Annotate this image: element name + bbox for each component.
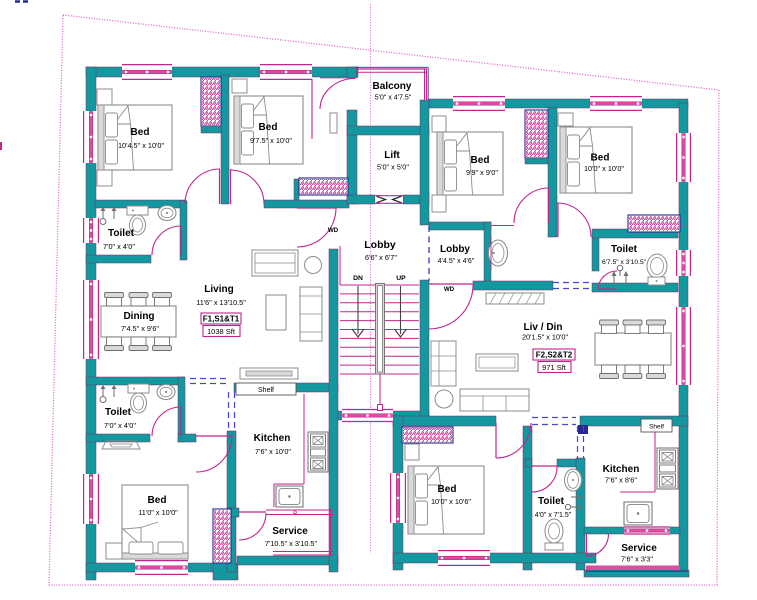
svg-text:Kitchen: Kitchen: [603, 464, 640, 475]
svg-text:10'0" x 10'6": 10'0" x 10'6": [431, 497, 471, 506]
svg-text:Bed: Bed: [591, 153, 610, 164]
svg-text:DN: DN: [353, 275, 363, 282]
svg-text:Toilet: Toilet: [105, 407, 132, 418]
svg-text:5'0" x 4'7.5": 5'0" x 4'7.5": [375, 95, 412, 102]
svg-text:Shelf: Shelf: [258, 387, 274, 394]
svg-text:Lobby: Lobby: [364, 239, 396, 251]
svg-text:7'6" x 8'6": 7'6" x 8'6": [605, 476, 637, 485]
svg-text:Living: Living: [204, 284, 233, 295]
svg-text:10'4.5" x 10'0": 10'4.5" x 10'0": [118, 141, 165, 150]
svg-text:971 Sft: 971 Sft: [542, 363, 567, 372]
svg-text:Lobby: Lobby: [440, 244, 470, 255]
svg-text:Toilet: Toilet: [538, 496, 565, 507]
svg-text:F2,S2&T2: F2,S2&T2: [536, 351, 573, 360]
svg-text:6'7.5" x 3'10.5": 6'7.5" x 3'10.5": [602, 259, 647, 266]
svg-text:Lift: Lift: [384, 150, 400, 161]
svg-text:7'0" x 4'0": 7'0" x 4'0": [103, 242, 135, 251]
svg-text:7'0" x 4'0": 7'0" x 4'0": [104, 421, 136, 430]
svg-text:7'6" x 3'3": 7'6" x 3'3": [621, 555, 653, 564]
svg-text:Bed: Bed: [259, 122, 278, 133]
svg-text:Kitchen: Kitchen: [254, 433, 291, 444]
svg-text:11'6" x 13'10.5": 11'6" x 13'10.5": [196, 298, 246, 307]
svg-text:Bed: Bed: [471, 155, 490, 166]
svg-text:Balcony: Balcony: [373, 81, 412, 92]
svg-text:9'9" x 9'0": 9'9" x 9'0": [466, 168, 498, 177]
svg-text:7'4.5" x 9'6": 7'4.5" x 9'6": [121, 324, 159, 333]
svg-text:Shelf: Shelf: [649, 424, 664, 431]
svg-text:Service: Service: [272, 526, 308, 537]
svg-text:7'10.5" x 3'10.5": 7'10.5" x 3'10.5": [265, 539, 318, 548]
svg-text:Toilet: Toilet: [611, 244, 638, 255]
svg-text:11'0" x 10'0": 11'0" x 10'0": [138, 508, 178, 517]
svg-text:6'6" x 6'7": 6'6" x 6'7": [365, 253, 397, 262]
svg-text:WD: WD: [328, 227, 339, 234]
svg-text:Bed: Bed: [131, 127, 150, 138]
svg-text:9'7.5" x 10'0": 9'7.5" x 10'0": [250, 136, 292, 145]
svg-text:Dining: Dining: [123, 311, 154, 322]
svg-text:Bed: Bed: [148, 495, 167, 506]
svg-text:1038 Sft: 1038 Sft: [207, 327, 236, 336]
svg-text:7'6" x 10'0": 7'6" x 10'0": [255, 447, 291, 456]
svg-text:UP: UP: [396, 275, 406, 282]
svg-text:Liv / Din: Liv / Din: [524, 322, 563, 333]
svg-text:Service: Service: [621, 543, 657, 554]
svg-text:Toilet: Toilet: [108, 228, 135, 239]
svg-text:F1,S1&T1: F1,S1&T1: [203, 315, 240, 324]
svg-text:Bed: Bed: [438, 484, 457, 495]
svg-text:4'4.5" x 4'6": 4'4.5" x 4'6": [438, 258, 475, 265]
svg-text:5'0" x 5'0": 5'0" x 5'0": [377, 163, 409, 172]
svg-text:4'0" x 7'1.5": 4'0" x 7'1.5": [535, 512, 572, 519]
svg-text:20'1.5" x 10'0": 20'1.5" x 10'0": [522, 333, 569, 342]
svg-text:10'0" x 10'0": 10'0" x 10'0": [584, 164, 624, 173]
svg-text:WD: WD: [444, 286, 455, 293]
